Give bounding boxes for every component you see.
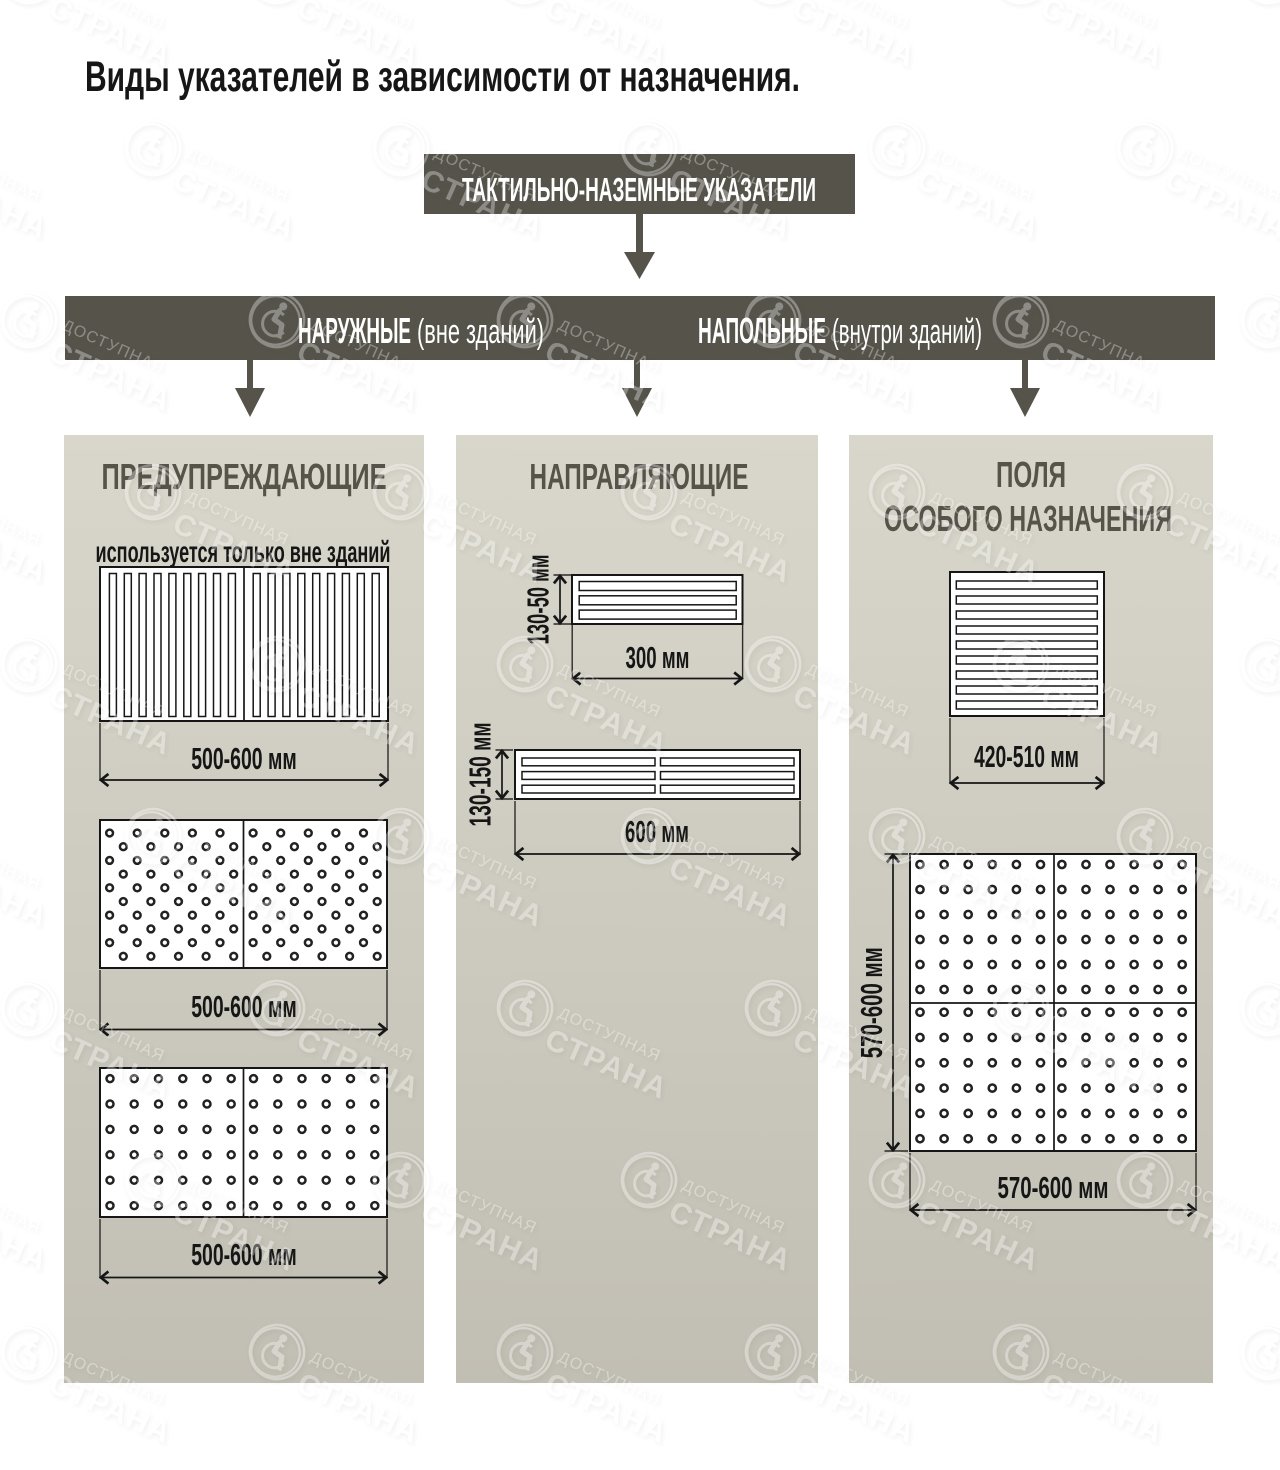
svg-text:420-510 мм: 420-510 мм [974,739,1079,774]
svg-text:570-600 мм: 570-600 мм [998,1170,1109,1205]
svg-text:НАПРАВЛЯЮЩИЕ: НАПРАВЛЯЮЩИЕ [530,456,749,497]
svg-text:500-600 мм: 500-600 мм [191,741,297,776]
svg-text:(вне зданий): (вне зданий) [417,313,544,351]
svg-text:570-600 мм: 570-600 мм [854,947,889,1058]
svg-text:130-150 мм: 130-150 мм [463,723,498,827]
svg-text:НАПОЛЬНЫЕ: НАПОЛЬНЫЕ [698,310,826,351]
svg-text:300 мм: 300 мм [626,640,690,675]
svg-text:используется только вне зданий: используется только вне зданий [96,536,391,569]
svg-text:500-600 мм: 500-600 мм [191,1237,297,1272]
svg-text:500-600 мм: 500-600 мм [191,989,297,1024]
svg-text:130-50 мм: 130-50 мм [521,555,556,645]
svg-text:600 мм: 600 мм [625,814,689,849]
svg-text:(внутри зданий): (внутри зданий) [832,313,982,351]
svg-text:ТАКТИЛЬНО-НАЗЕМНЫЕ УКАЗАТЕЛИ: ТАКТИЛЬНО-НАЗЕМНЫЕ УКАЗАТЕЛИ [462,171,816,208]
svg-text:ОСОБОГО НАЗНАЧЕНИЯ: ОСОБОГО НАЗНАЧЕНИЯ [884,498,1172,539]
svg-text:НАРУЖНЫЕ: НАРУЖНЫЕ [298,310,411,351]
svg-text:ПРЕДУПРЕЖДАЮЩИЕ: ПРЕДУПРЕЖДАЮЩИЕ [102,456,387,497]
svg-text:ПОЛЯ: ПОЛЯ [996,454,1066,495]
svg-text:Виды указателей в зависимости: Виды указателей в зависимости от назначе… [85,54,800,101]
